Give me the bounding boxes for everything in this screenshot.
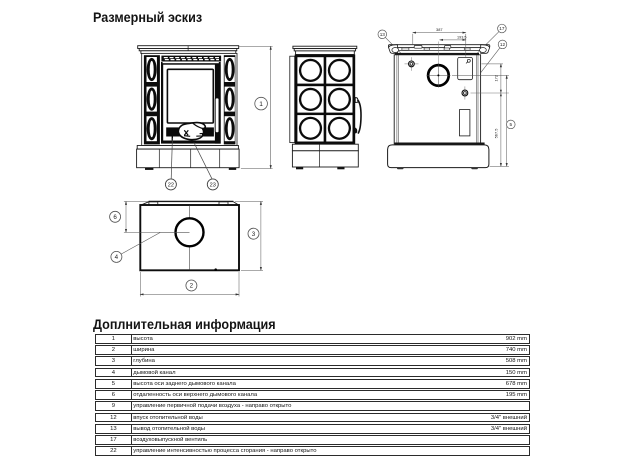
- svg-text:17: 17: [499, 26, 505, 31]
- svg-text:13: 13: [380, 32, 386, 37]
- svg-text:3: 3: [252, 231, 256, 238]
- svg-text:172: 172: [493, 75, 498, 82]
- svg-text:6: 6: [113, 214, 117, 221]
- svg-text:193.5: 193.5: [457, 36, 467, 40]
- svg-text:2: 2: [190, 283, 194, 290]
- svg-text:387: 387: [436, 27, 443, 32]
- svg-text:1: 1: [259, 101, 263, 108]
- svg-text:22: 22: [168, 182, 174, 188]
- svg-text:5: 5: [509, 122, 512, 127]
- svg-text:4: 4: [115, 254, 119, 261]
- svg-text:12: 12: [500, 42, 506, 47]
- svg-text:23: 23: [210, 182, 216, 188]
- svg-text:567.5: 567.5: [493, 129, 498, 139]
